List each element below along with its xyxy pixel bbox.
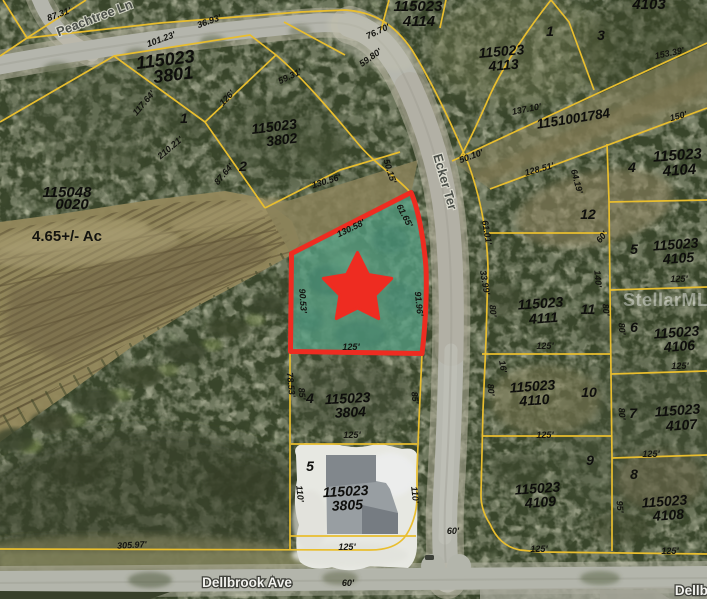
svg-text:StellarMLS: StellarMLS bbox=[623, 290, 707, 310]
svg-text:95': 95' bbox=[614, 500, 625, 514]
svg-text:85': 85' bbox=[409, 391, 420, 405]
svg-text:80': 80' bbox=[616, 322, 627, 336]
svg-text:1: 1 bbox=[546, 23, 554, 39]
svg-text:3: 3 bbox=[597, 27, 605, 43]
svg-text:12: 12 bbox=[580, 206, 596, 222]
svg-text:Dellbr: Dellbr bbox=[675, 583, 707, 598]
svg-text:80': 80' bbox=[487, 304, 498, 318]
svg-text:80': 80' bbox=[616, 407, 627, 421]
svg-text:3804: 3804 bbox=[334, 403, 366, 421]
svg-text:9: 9 bbox=[586, 452, 594, 468]
svg-text:4113: 4113 bbox=[487, 56, 520, 75]
svg-text:4107: 4107 bbox=[664, 416, 698, 434]
svg-text:4: 4 bbox=[627, 159, 636, 175]
svg-text:2: 2 bbox=[238, 158, 247, 174]
svg-text:6: 6 bbox=[630, 319, 638, 335]
svg-text:4108: 4108 bbox=[651, 506, 684, 524]
svg-text:125': 125' bbox=[536, 341, 554, 351]
svg-text:8: 8 bbox=[630, 466, 638, 482]
svg-text:4109: 4109 bbox=[523, 493, 556, 511]
svg-text:125': 125' bbox=[530, 544, 548, 554]
svg-text:125': 125' bbox=[536, 430, 554, 440]
svg-text:125': 125' bbox=[343, 430, 361, 440]
svg-text:4104: 4104 bbox=[661, 161, 697, 180]
svg-text:110': 110' bbox=[409, 486, 421, 504]
svg-text:7: 7 bbox=[629, 405, 638, 421]
svg-text:125': 125' bbox=[661, 546, 679, 556]
svg-text:80': 80' bbox=[485, 383, 496, 397]
svg-text:3805: 3805 bbox=[331, 496, 363, 514]
svg-text:125': 125' bbox=[342, 342, 360, 352]
svg-text:125': 125' bbox=[671, 361, 689, 371]
svg-text:5: 5 bbox=[630, 241, 638, 257]
svg-text:4111: 4111 bbox=[527, 309, 558, 327]
svg-text:140': 140' bbox=[592, 270, 604, 289]
svg-text:4103: 4103 bbox=[631, 0, 666, 13]
svg-text:90.53': 90.53' bbox=[297, 288, 309, 314]
svg-text:4.65+/- Ac: 4.65+/- Ac bbox=[32, 228, 102, 245]
svg-text:0020: 0020 bbox=[55, 196, 89, 213]
svg-text:60': 60' bbox=[447, 526, 460, 536]
svg-text:4105: 4105 bbox=[661, 249, 694, 267]
svg-text:11: 11 bbox=[581, 301, 596, 317]
svg-text:4106: 4106 bbox=[662, 337, 695, 355]
svg-text:85': 85' bbox=[296, 387, 307, 401]
svg-text:305.97': 305.97' bbox=[117, 539, 148, 551]
svg-text:125': 125' bbox=[670, 274, 688, 284]
svg-text:Dellbrook Ave: Dellbrook Ave bbox=[202, 575, 292, 590]
svg-text:5: 5 bbox=[306, 458, 314, 474]
svg-text:4114: 4114 bbox=[402, 13, 436, 30]
svg-text:125': 125' bbox=[642, 449, 660, 459]
svg-text:1: 1 bbox=[180, 110, 188, 126]
svg-text:125': 125' bbox=[338, 542, 356, 552]
svg-text:80': 80' bbox=[600, 303, 611, 317]
svg-text:60': 60' bbox=[342, 578, 355, 588]
svg-text:10: 10 bbox=[581, 384, 597, 400]
svg-text:4110: 4110 bbox=[518, 391, 550, 409]
svg-text:110': 110' bbox=[294, 485, 306, 503]
